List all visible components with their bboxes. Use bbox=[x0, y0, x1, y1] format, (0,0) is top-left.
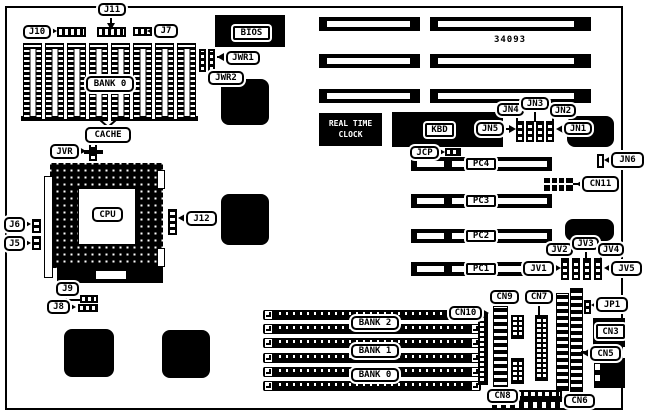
label-jn6: JN6 bbox=[611, 152, 644, 168]
simm-slot bbox=[263, 381, 481, 391]
arrow-j12-icon bbox=[178, 214, 185, 222]
jumper-jn bbox=[526, 121, 534, 142]
label-bank1: BANK 1 bbox=[351, 344, 399, 358]
qfp-chip bbox=[64, 329, 114, 377]
label-jv2: JV2 bbox=[546, 243, 573, 256]
label-jn3: JN3 bbox=[521, 97, 549, 110]
arrow-jn5-icon bbox=[509, 125, 516, 133]
isa-slot bbox=[430, 17, 591, 31]
arrow-j6-icon bbox=[24, 220, 31, 228]
isa-slot bbox=[319, 17, 420, 31]
cpu-notch bbox=[157, 248, 165, 267]
jumper-jv bbox=[572, 258, 580, 280]
jumper-jv bbox=[583, 258, 591, 280]
wire-jn4 bbox=[516, 116, 518, 122]
label-cn10: CN10 bbox=[449, 306, 482, 320]
arrow-j10-icon bbox=[50, 27, 57, 35]
qfp-chip bbox=[221, 194, 269, 245]
label-pc1: PC1 bbox=[466, 263, 496, 275]
jumper-j8 bbox=[78, 304, 98, 312]
cpu-notch bbox=[157, 170, 165, 189]
jumper-j9 bbox=[80, 295, 98, 303]
arrow-jn6-icon bbox=[604, 156, 611, 164]
label-jn5: JN5 bbox=[476, 122, 504, 136]
connector-notch bbox=[595, 375, 600, 381]
jumper-jv bbox=[561, 258, 569, 280]
pin-header bbox=[556, 293, 569, 391]
cpu-side-bar bbox=[44, 176, 53, 278]
connector-notch bbox=[595, 364, 600, 370]
label-j9: J9 bbox=[56, 282, 79, 296]
arrow-j11-icon bbox=[107, 23, 115, 30]
label-jn2: JN2 bbox=[550, 104, 576, 117]
label-bank2: BANK 2 bbox=[351, 316, 399, 330]
jumper-j12 bbox=[168, 209, 177, 235]
jumper-jn bbox=[546, 121, 554, 142]
jumper-jcp bbox=[445, 148, 461, 156]
label-cn6: CN6 bbox=[564, 394, 595, 408]
wire-jv3 bbox=[585, 250, 587, 259]
label-cn3: CN3 bbox=[596, 324, 625, 339]
jumper-j6 bbox=[32, 219, 41, 233]
arrow-jvr-icon bbox=[79, 147, 86, 155]
header-cn9 bbox=[493, 306, 508, 390]
part-number: 34093 bbox=[486, 35, 534, 47]
label-j5: J5 bbox=[4, 236, 25, 251]
arrow-jv1-icon bbox=[554, 264, 561, 272]
label-pc4: PC4 bbox=[466, 158, 496, 170]
label-j8: J8 bbox=[47, 300, 70, 314]
header-cn5 bbox=[570, 288, 583, 392]
label-jvr: JVR bbox=[50, 144, 79, 159]
label-j7: J7 bbox=[154, 24, 178, 38]
label-jv3: JV3 bbox=[572, 237, 599, 250]
label-jwr1: JWR1 bbox=[226, 51, 260, 65]
arrow-j7-icon bbox=[147, 27, 154, 35]
arrow-jv5-icon bbox=[604, 264, 611, 272]
label-jcp: JCP bbox=[410, 146, 439, 159]
jumper-j5 bbox=[32, 236, 41, 250]
qfp-chip bbox=[221, 79, 269, 125]
arrow-jn1-icon bbox=[556, 125, 563, 133]
label-j10: J10 bbox=[23, 25, 51, 39]
wire-cn7 bbox=[538, 303, 540, 315]
label-bank0: BANK 0 bbox=[351, 368, 399, 382]
motherboard-diagram: J10 J11 J7 BANK 0 CACHE BIOS JWR1 JWR2 3… bbox=[0, 0, 645, 419]
pin-header bbox=[511, 315, 524, 339]
header-cn11 bbox=[544, 178, 573, 191]
jumper-jn bbox=[536, 121, 544, 142]
jumper-jv bbox=[594, 258, 602, 280]
amp-window bbox=[96, 271, 126, 279]
connector-jn6 bbox=[597, 154, 604, 168]
label-j11: J11 bbox=[98, 3, 126, 16]
rtc-text: REAL TIME CLOCK bbox=[319, 113, 382, 146]
label-jn1: JN1 bbox=[564, 122, 592, 135]
label-j6: J6 bbox=[4, 217, 25, 232]
isa-slot bbox=[430, 89, 591, 103]
label-jv5: JV5 bbox=[611, 261, 642, 276]
isa-slot bbox=[319, 54, 420, 68]
label-cn5: CN5 bbox=[590, 346, 621, 361]
arrow-cn10-icon bbox=[482, 309, 489, 317]
label-bank0-cache: BANK 0 bbox=[86, 76, 134, 92]
label-pc2: PC2 bbox=[466, 230, 496, 242]
connector-block bbox=[594, 358, 625, 388]
label-jp1: JP1 bbox=[596, 297, 628, 312]
label-jv4: JV4 bbox=[598, 243, 624, 256]
jumper-jp1 bbox=[584, 300, 591, 314]
jumper-jvr-bar bbox=[84, 150, 103, 154]
label-kbd: KBD bbox=[425, 123, 454, 137]
arrow-j5-icon bbox=[24, 239, 31, 247]
label-cn8: CN8 bbox=[487, 389, 518, 403]
wire-jn2 bbox=[552, 117, 554, 122]
header-cn10 bbox=[478, 313, 488, 385]
isa-slot bbox=[319, 89, 420, 103]
label-jv1: JV1 bbox=[523, 261, 554, 276]
label-jn4: JN4 bbox=[497, 103, 524, 116]
qfp-chip bbox=[162, 330, 210, 378]
pin-header bbox=[511, 358, 524, 384]
label-cn7: CN7 bbox=[525, 290, 553, 304]
jumper-jn bbox=[516, 121, 524, 142]
label-jwr2: JWR2 bbox=[208, 71, 244, 85]
arrow-cn5-icon bbox=[582, 349, 589, 357]
label-cpu: CPU bbox=[92, 207, 123, 222]
label-bios: BIOS bbox=[233, 26, 270, 40]
arrow-jwr1-icon bbox=[217, 53, 224, 61]
label-cn9: CN9 bbox=[490, 290, 519, 304]
label-cn11: CN11 bbox=[582, 176, 619, 192]
wire-jn3 bbox=[534, 110, 536, 122]
arrow-jcp-icon bbox=[438, 148, 445, 156]
label-j12: J12 bbox=[186, 211, 217, 226]
isa-slot bbox=[430, 54, 591, 68]
label-pc3: PC3 bbox=[466, 195, 496, 207]
label-cache: CACHE bbox=[85, 127, 131, 143]
arrow-j8-icon bbox=[69, 303, 76, 311]
header-cn7 bbox=[535, 315, 548, 381]
